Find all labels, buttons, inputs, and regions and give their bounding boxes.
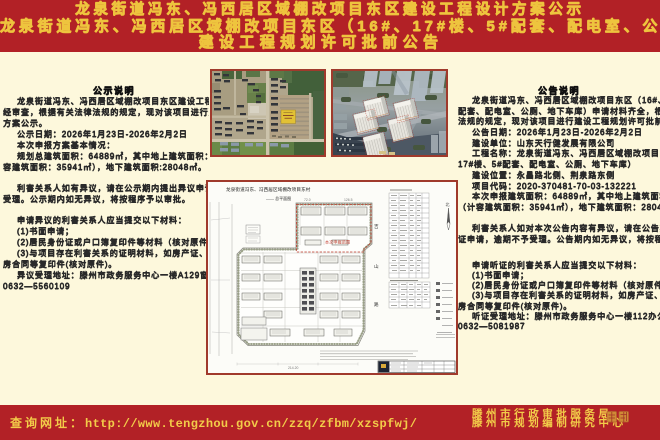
svg-text:本次申报范围: 本次申报范围	[325, 239, 350, 245]
svg-text:126.5: 126.5	[344, 198, 353, 202]
svg-text:72.0: 72.0	[304, 198, 311, 202]
svg-text:龙泉街道冯东、冯西居区域棚改项目东村: 龙泉街道冯东、冯西居区域棚改项目东村	[226, 186, 311, 193]
svg-text:214.20: 214.20	[288, 366, 298, 370]
svg-text:—— 总平面图: —— 总平面图	[266, 195, 291, 201]
svg-text:路: 路	[374, 301, 379, 308]
svg-text:山: 山	[374, 263, 379, 270]
svg-text:北: 北	[446, 201, 450, 207]
